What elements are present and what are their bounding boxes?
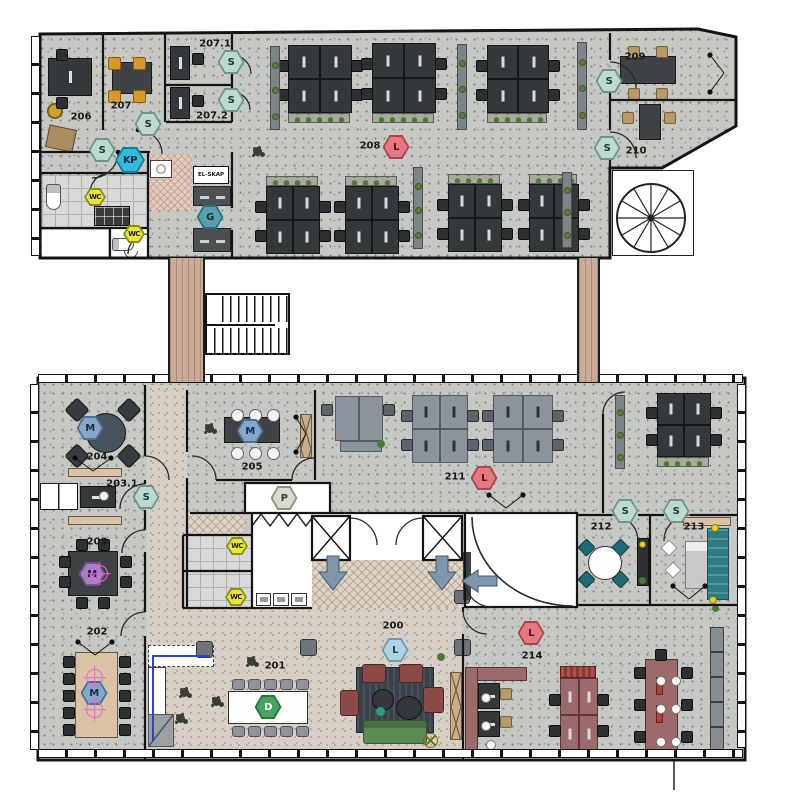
room-label-213: 213	[684, 522, 705, 533]
chair	[518, 199, 530, 211]
desk	[412, 395, 440, 429]
desk-cluster	[288, 45, 352, 123]
room-label-203-1: 203.1	[106, 479, 138, 490]
desk	[372, 43, 404, 78]
plant-icon	[617, 454, 624, 461]
chair	[398, 230, 410, 242]
chair	[232, 679, 245, 690]
chair	[108, 57, 121, 70]
chair	[192, 53, 204, 65]
monitor-icon	[425, 441, 428, 452]
chair	[552, 410, 564, 422]
chair	[482, 439, 494, 451]
chair	[634, 667, 646, 679]
chair	[383, 404, 395, 416]
chair	[656, 737, 666, 747]
chair	[671, 704, 681, 714]
desk-cluster	[372, 43, 436, 123]
desk	[440, 395, 468, 429]
desk-207-1	[170, 46, 190, 80]
chair	[119, 656, 131, 668]
chair	[476, 89, 488, 101]
monitor-icon	[419, 90, 422, 101]
monitor-icon	[335, 91, 338, 102]
chair	[681, 731, 693, 743]
desk	[529, 218, 554, 252]
desk	[288, 45, 320, 79]
desk	[448, 184, 475, 218]
chair	[76, 597, 88, 609]
chair	[120, 556, 132, 568]
planter	[657, 457, 709, 467]
monitor-icon	[384, 198, 387, 209]
storage-room	[42, 230, 108, 257]
chair	[334, 230, 346, 242]
coffee-table	[396, 696, 422, 720]
desk	[288, 79, 320, 113]
marker-letter: S	[220, 90, 243, 110]
chair	[634, 731, 646, 743]
planter	[345, 176, 397, 186]
windows-upper-west	[31, 36, 40, 256]
chair	[656, 46, 668, 58]
figure-icon	[212, 697, 221, 706]
chair	[334, 201, 346, 213]
desk	[293, 220, 320, 254]
room-label-209: 209	[625, 52, 646, 63]
chair	[628, 88, 640, 100]
monitor-icon	[696, 404, 699, 415]
sofa-200	[363, 720, 427, 744]
plant-icon	[579, 85, 586, 92]
monitor-icon	[357, 198, 360, 209]
chair	[296, 679, 309, 690]
marker-letter: WC	[125, 227, 143, 241]
meter-box	[256, 593, 271, 606]
chair	[401, 439, 413, 451]
figure-icon	[253, 147, 262, 156]
privacy-screen	[270, 46, 280, 130]
plant-icon	[459, 86, 466, 93]
room-label-201: 201	[265, 661, 286, 672]
chair	[255, 230, 267, 242]
monitor-icon	[384, 232, 387, 243]
marker-letter: S	[614, 501, 637, 521]
room-label-200: 200	[383, 621, 404, 632]
chair	[655, 649, 667, 661]
chair	[435, 58, 447, 70]
room-label-207-2: 207.2	[196, 111, 228, 122]
marker-letter: WC	[86, 190, 104, 204]
room-label-210: 210	[626, 146, 647, 157]
kitchen-service-line-h	[152, 655, 210, 657]
monitor-icon	[460, 196, 463, 207]
chair	[671, 737, 681, 747]
plant-icon	[564, 209, 571, 216]
room-label-214: 214	[522, 651, 543, 662]
chair	[548, 89, 560, 101]
door-stub	[463, 552, 471, 600]
desk	[487, 79, 518, 113]
windows-lower-south	[38, 749, 743, 758]
armchair	[423, 687, 444, 713]
chair	[255, 201, 267, 213]
chair	[63, 690, 75, 702]
chair	[549, 725, 561, 737]
chair	[119, 707, 131, 719]
chair	[500, 688, 512, 700]
monitor-icon	[460, 230, 463, 241]
plant-icon	[579, 59, 586, 66]
chair	[467, 410, 479, 422]
room-label-204: 204	[87, 452, 108, 463]
chair	[119, 690, 131, 702]
chair	[133, 57, 146, 70]
chair	[296, 726, 309, 737]
stair-flight-lower	[214, 328, 288, 353]
monitor-icon	[357, 232, 360, 243]
monitor-icon	[501, 91, 504, 102]
chair	[646, 434, 658, 446]
desk-cluster	[448, 174, 502, 252]
link-corridor-east	[577, 258, 600, 382]
desk	[345, 186, 372, 220]
marker-letter: L	[384, 640, 407, 660]
monitor-icon	[568, 728, 571, 739]
desk-cluster	[657, 393, 711, 467]
desk	[657, 425, 684, 457]
desk	[475, 184, 502, 218]
planter	[288, 113, 350, 123]
desk-cluster	[412, 395, 468, 463]
plant-icon	[617, 432, 624, 439]
figure-icon	[180, 688, 189, 697]
marker-letter: S	[135, 487, 158, 507]
desk	[493, 395, 523, 429]
chair	[646, 407, 658, 419]
plant-icon	[272, 87, 279, 94]
stool-dot	[376, 707, 385, 716]
chair	[249, 447, 262, 460]
privacy-screen	[457, 44, 467, 130]
chair	[264, 726, 277, 737]
desk	[404, 78, 436, 113]
desk	[475, 218, 502, 252]
chair	[501, 199, 513, 211]
plant-icon	[579, 112, 586, 119]
chair	[264, 679, 277, 690]
marker-letter: WC	[228, 539, 246, 553]
survey-point-icon	[86, 669, 103, 686]
chair	[437, 199, 449, 211]
desk	[657, 393, 684, 425]
monitor-icon	[453, 441, 456, 452]
chair	[133, 90, 146, 103]
chair	[280, 726, 293, 737]
marker-letter: WC	[227, 590, 245, 604]
monitor-icon	[278, 232, 281, 243]
chair	[481, 721, 491, 731]
desk	[579, 715, 598, 752]
room-label-207-1: 207.1	[199, 39, 231, 50]
chair	[518, 228, 530, 240]
armchair	[399, 664, 423, 683]
marker-letter: S	[91, 140, 114, 160]
monitor-icon	[387, 90, 390, 101]
monitor-icon	[532, 91, 535, 102]
planter	[448, 174, 500, 184]
chair	[578, 199, 590, 211]
chair	[267, 447, 280, 460]
monitor-icon	[669, 404, 672, 415]
chair	[578, 228, 590, 240]
meter-box	[273, 593, 289, 606]
room-label-212: 212	[591, 522, 612, 533]
chair	[681, 699, 693, 711]
monitor-icon	[540, 230, 543, 241]
desk	[518, 45, 549, 79]
kitchenette-counter-b	[193, 228, 231, 252]
desk	[684, 393, 711, 425]
chair	[398, 201, 410, 213]
armchair	[340, 690, 359, 716]
figure-icon	[205, 424, 214, 433]
waste-bin	[300, 639, 317, 656]
chair	[671, 676, 681, 686]
chair	[248, 726, 261, 737]
chair	[280, 679, 293, 690]
bench-stripe	[560, 666, 596, 678]
monitor-icon	[587, 728, 590, 739]
monitor-icon	[305, 198, 308, 209]
chair	[482, 410, 494, 422]
kitchen-service-line-v	[152, 655, 154, 741]
monitor-icon	[501, 57, 504, 68]
chair	[119, 724, 131, 736]
desk	[523, 395, 553, 429]
desk	[529, 184, 554, 218]
floor-plan: EL-SKAP	[0, 0, 800, 793]
desk	[523, 429, 553, 463]
toilet	[46, 184, 61, 210]
marker-letter: L	[520, 623, 543, 643]
desk	[293, 186, 320, 220]
chair	[656, 704, 666, 714]
chair	[597, 725, 609, 737]
shower-bench	[94, 206, 130, 226]
room-label-208: 208	[360, 141, 381, 152]
survey-point-icon	[91, 565, 108, 582]
desk	[266, 186, 293, 220]
chair	[120, 576, 132, 588]
lamp-dot	[711, 524, 719, 532]
room-label-211: 211	[445, 472, 466, 483]
figure-icon	[176, 714, 185, 723]
monitor-icon	[303, 91, 306, 102]
privacy-screen	[577, 42, 587, 130]
chair	[549, 694, 561, 706]
plant-dot	[639, 577, 646, 584]
desk	[518, 79, 549, 113]
plant-dot	[377, 440, 385, 448]
desk	[404, 43, 436, 78]
windows-lower-east	[737, 384, 746, 748]
survey-point-icon	[86, 701, 103, 718]
room-label-202: 202	[87, 627, 108, 638]
chair	[321, 404, 333, 416]
chair	[401, 410, 413, 422]
room-label-206: 206	[71, 112, 92, 123]
corner-desk-base	[340, 441, 382, 452]
planter	[372, 113, 434, 123]
kitchenette-counter-a	[193, 186, 231, 206]
waste-bin	[454, 639, 471, 656]
chair	[319, 230, 331, 242]
monitor-icon	[587, 691, 590, 702]
desk-cluster	[493, 395, 553, 463]
privacy-screen	[413, 167, 423, 249]
chair	[435, 88, 447, 100]
desk	[320, 45, 352, 79]
figure-icon	[247, 657, 256, 666]
chair	[56, 97, 68, 109]
desk	[487, 45, 518, 79]
desk	[684, 425, 711, 457]
desk-cluster	[345, 176, 399, 254]
chair	[119, 673, 131, 685]
monitor-icon	[335, 57, 338, 68]
plant-icon	[272, 113, 279, 120]
sideboard-214	[450, 672, 462, 740]
elevator-vestibule	[350, 513, 423, 560]
chair	[192, 95, 204, 107]
desk	[412, 429, 440, 463]
desk	[560, 678, 579, 715]
desk	[266, 220, 293, 254]
chair	[622, 112, 634, 124]
link-corridor-west	[168, 258, 205, 382]
corner-desk-211	[335, 396, 359, 441]
marker-letter: L	[473, 468, 496, 488]
desk-cluster	[487, 45, 549, 123]
chair	[476, 60, 488, 72]
chair	[231, 409, 244, 422]
plant-icon	[272, 62, 279, 69]
monitor-icon	[487, 196, 490, 207]
desk-206	[48, 58, 92, 96]
marker-letter: S	[598, 71, 621, 91]
desk	[320, 79, 352, 113]
plant-dot	[712, 605, 719, 612]
plant-icon	[459, 60, 466, 67]
chair	[656, 88, 668, 100]
plant-icon	[415, 183, 422, 190]
lamp-dot	[709, 596, 717, 604]
monitor-icon	[387, 55, 390, 66]
privacy-screen	[562, 172, 572, 248]
chair	[467, 439, 479, 451]
armchair	[362, 664, 386, 683]
monitor-icon	[487, 230, 490, 241]
desk	[579, 678, 598, 715]
monitor-icon	[696, 436, 699, 447]
plant-icon	[415, 207, 422, 214]
lamp-dot	[639, 541, 646, 548]
chair	[681, 667, 693, 679]
chair	[501, 228, 513, 240]
cabinet-205	[300, 414, 312, 458]
chair	[552, 439, 564, 451]
marker-letter: P	[273, 488, 296, 508]
el-skap-cabinet: EL-SKAP	[193, 166, 229, 184]
desk-cluster	[560, 666, 598, 752]
marker-letter: D	[257, 697, 280, 717]
elevator-1	[312, 513, 350, 560]
chair	[710, 434, 722, 446]
planter	[266, 176, 318, 186]
room-label-207: 207	[111, 101, 132, 112]
desk	[448, 218, 475, 252]
chair	[232, 726, 245, 737]
sink-unit	[150, 160, 172, 178]
chair	[99, 491, 109, 501]
monitor-icon	[568, 691, 571, 702]
chair	[710, 407, 722, 419]
monitor-icon	[278, 198, 281, 209]
chair	[231, 447, 244, 460]
marker-letter: G	[199, 207, 222, 227]
desk	[372, 78, 404, 113]
monitor-icon	[425, 407, 428, 418]
room-label-203: 203	[87, 537, 108, 548]
marker-letter: S	[596, 138, 619, 158]
privacy-screen	[615, 395, 625, 469]
windows-lower-north	[38, 374, 743, 383]
desk	[372, 220, 399, 254]
exercise-ball	[423, 733, 438, 748]
room-label-205: 205	[242, 462, 263, 473]
desk	[560, 715, 579, 752]
spiral-stair-box	[612, 170, 694, 256]
chair	[481, 693, 491, 703]
monitor-icon	[540, 196, 543, 207]
chair	[248, 679, 261, 690]
window-bay-203-1	[40, 483, 78, 510]
desk-cluster	[266, 176, 320, 254]
desk	[372, 186, 399, 220]
marker-letter: M	[239, 421, 262, 441]
monitor-icon	[669, 436, 672, 447]
elevator-2	[423, 513, 462, 560]
plant-icon	[617, 409, 624, 416]
stair-flight-upper	[222, 296, 288, 322]
sideboard-204	[68, 468, 122, 477]
chair	[597, 694, 609, 706]
el-skap-label: EL-SKAP	[194, 167, 228, 183]
chair	[634, 699, 646, 711]
marker-letter: M	[79, 418, 102, 438]
desk	[345, 220, 372, 254]
chair	[59, 576, 71, 588]
chair	[361, 58, 373, 70]
chair	[63, 656, 75, 668]
plant-icon	[415, 232, 422, 239]
marker-letter: L	[385, 137, 408, 157]
monitor-icon	[303, 57, 306, 68]
chair	[664, 112, 676, 124]
arch-room	[465, 513, 577, 607]
chair	[63, 673, 75, 685]
